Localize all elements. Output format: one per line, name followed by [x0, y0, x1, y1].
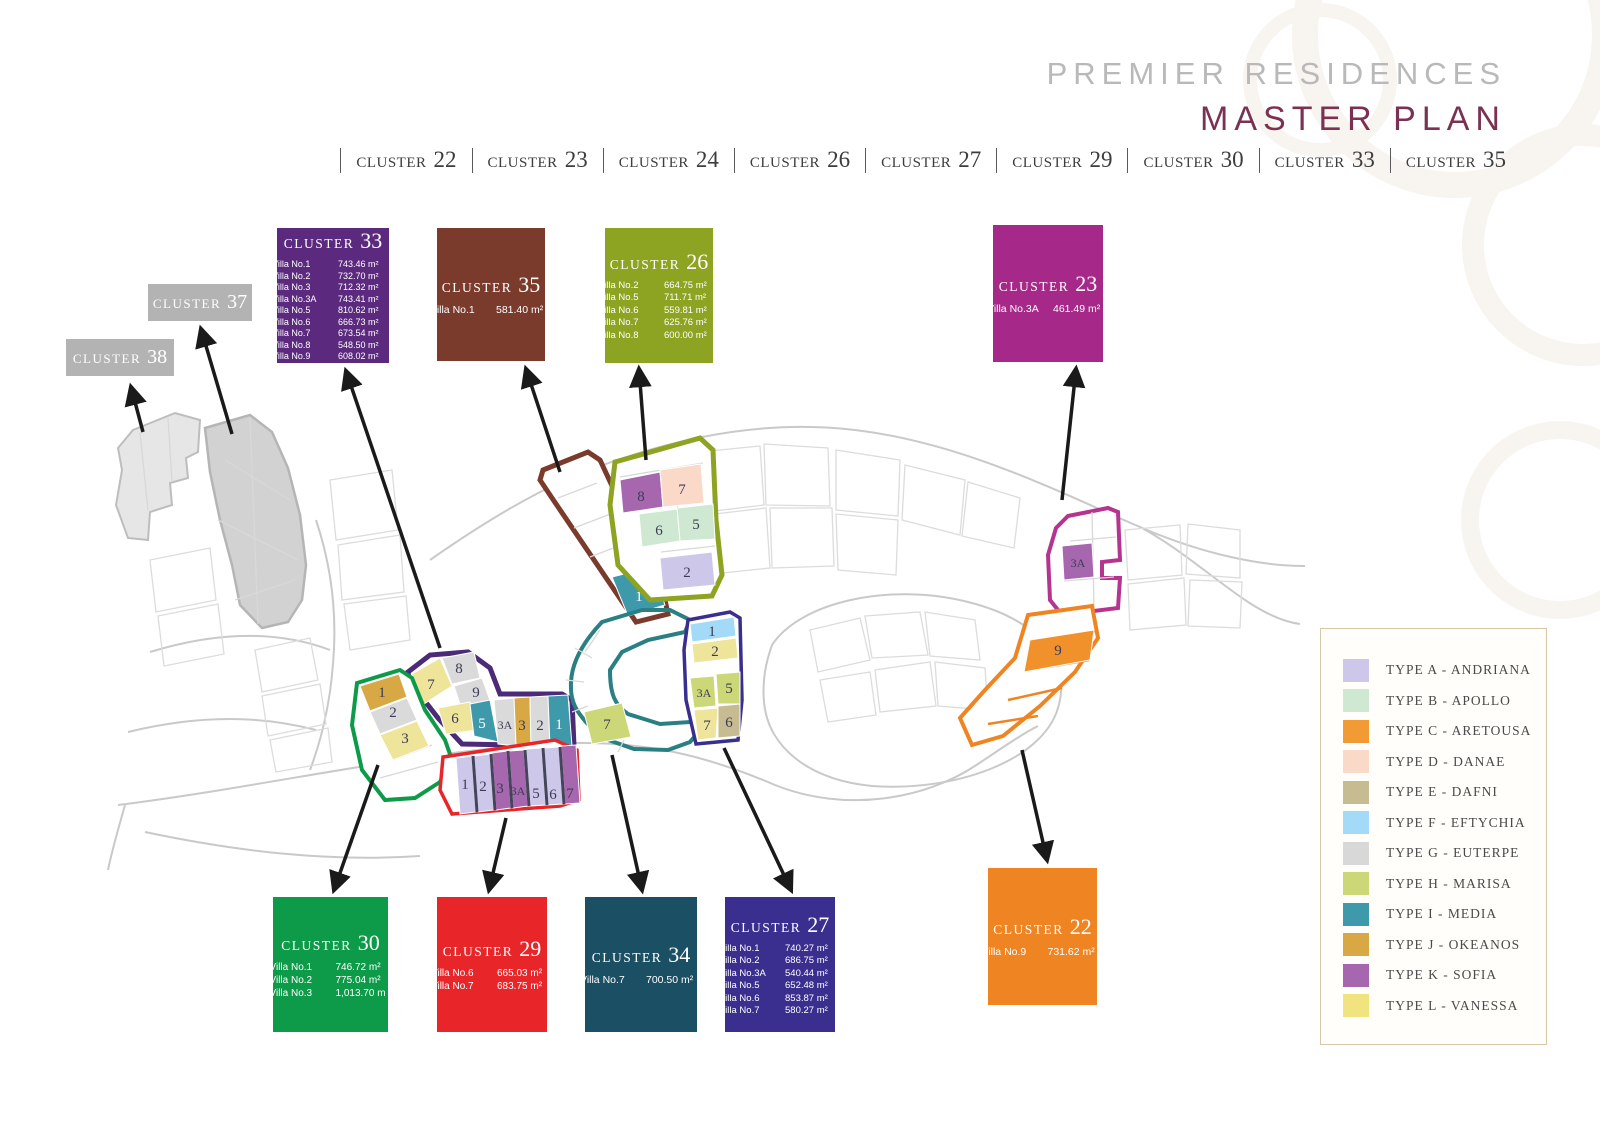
cluster-word: CLUSTER	[281, 938, 352, 953]
nav-cluster-word: CLUSTER	[356, 155, 426, 172]
legend-item: TYPE E - DAFNI	[1343, 777, 1546, 808]
cluster-number: 38	[147, 346, 167, 368]
cell-label: 9	[1054, 643, 1062, 659]
villa-row: Villa No.7 673.54 m²	[272, 328, 394, 340]
arrow-cluster-30	[334, 765, 378, 890]
villa-row: Villa No.3 1,013.70 m	[270, 987, 392, 1000]
arrow-cluster-33	[346, 371, 440, 648]
cluster-34-title: CLUSTER34	[592, 942, 691, 968]
cluster-30-title: CLUSTER30	[281, 930, 380, 956]
villa-name: Villa No.1	[270, 961, 327, 974]
cluster-35-info-box: CLUSTER35 Villa No.1 581.40 m²	[437, 228, 545, 361]
villa-row: Villa No.3A 743.41 m²	[272, 294, 394, 306]
type-color-swatch	[1343, 933, 1369, 956]
cluster-35-title: CLUSTER35	[442, 272, 541, 298]
cell-label: 3	[496, 781, 504, 797]
villa-area: 1,013.70 m	[336, 987, 392, 1000]
type-color-swatch	[1343, 964, 1369, 987]
nav-cluster-word: CLUSTER	[488, 155, 558, 172]
villa-area: 743.46 m²	[338, 259, 394, 271]
cluster-number: 35	[518, 272, 540, 297]
legend-item: TYPE H - MARISA	[1343, 869, 1546, 900]
cluster-word: CLUSTER	[153, 296, 221, 311]
villa-area: 712.32 m²	[338, 282, 394, 294]
cell-label: 3A	[498, 718, 513, 732]
nav-cluster-word: CLUSTER	[1012, 155, 1082, 172]
type-label: TYPE G - EUTERPE	[1386, 845, 1519, 861]
cluster-word: CLUSTER	[443, 944, 514, 959]
cluster-26-info-box: CLUSTER26 Villa No.2 664.75 m² Villa No.…	[605, 228, 713, 363]
villa-list: Villa No.3A 461.49 m²	[987, 302, 1109, 316]
villa-name: Villa No.6	[431, 967, 488, 981]
type-label: TYPE C - ARETOUSA	[1386, 723, 1531, 739]
villa-name: Villa No.2	[270, 974, 327, 987]
cluster-23-title: CLUSTER23	[999, 271, 1098, 297]
legend-item: TYPE C - ARETOUSA	[1343, 716, 1546, 747]
villa-area: 810.62 m²	[338, 305, 394, 317]
cell-label: 1	[461, 777, 469, 793]
villa-area: 673.54 m²	[338, 328, 394, 340]
villa-row: Villa No.2 664.75 m²	[598, 280, 720, 293]
legend-item: TYPE J - OKEANOS	[1343, 930, 1546, 961]
villa-name: Villa No.2	[272, 271, 329, 283]
arrow-cluster-38	[131, 387, 143, 432]
cluster-number: 27	[807, 912, 829, 937]
villa-name: Villa No.5	[719, 980, 776, 993]
villa-area: 608.02 m²	[338, 351, 394, 363]
villa-name: Villa No.1	[719, 943, 776, 956]
villa-area: 740.27 m²	[785, 943, 841, 956]
villa-row: Villa No.6 665.03 m²	[431, 967, 553, 981]
cluster-number: 26	[686, 249, 708, 274]
legend-item: TYPE I - MEDIA	[1343, 899, 1546, 930]
villa-row: Villa No.6 853.87 m²	[719, 993, 841, 1006]
villa-name: Villa No.9	[982, 945, 1039, 959]
cell-label: 7	[566, 786, 574, 802]
cell-label: 2	[536, 718, 544, 734]
villa-name: Villa No.5	[598, 292, 655, 305]
cluster-29-info-box: CLUSTER29 Villa No.6 665.03 m² Villa No.…	[437, 897, 547, 1032]
villa-row: Villa No.6 666.73 m²	[272, 317, 394, 329]
map-cluster-26: 8 7 6 5 2	[610, 438, 722, 600]
cluster-number: 33	[360, 228, 382, 253]
villa-area: 731.62 m²	[1048, 945, 1104, 959]
arrow-cluster-27	[724, 748, 791, 890]
type-color-swatch	[1343, 689, 1369, 712]
cluster-word: CLUSTER	[993, 922, 1064, 937]
nav-cluster-item[interactable]: CLUSTER 23	[457, 147, 588, 173]
cluster-37-info-box: CLUSTER37	[148, 284, 252, 321]
legend-item: TYPE B - APOLLO	[1343, 686, 1546, 717]
villa-name: Villa No.2	[719, 955, 776, 968]
cluster-number: 30	[358, 930, 380, 955]
villa-area: 581.40 m²	[496, 303, 552, 317]
cell-label: 3A	[697, 686, 712, 700]
type-color-swatch	[1343, 781, 1369, 804]
villa-row: Villa No.1 746.72 m²	[270, 961, 392, 974]
arrow-cluster-35	[526, 369, 560, 472]
villa-name: Villa No.8	[598, 330, 655, 343]
cell-label: 7	[703, 718, 711, 734]
villa-name: Villa No.6	[598, 305, 655, 318]
brand-title: PREMIER RESIDENCES	[1047, 56, 1506, 92]
nav-cluster-number: 27	[958, 147, 981, 173]
cluster-33-info-box: CLUSTER33 Villa No.1 743.46 m² Villa No.…	[277, 228, 389, 363]
type-color-swatch	[1343, 872, 1369, 895]
villa-row: Villa No.7 683.75 m²	[431, 980, 553, 994]
type-color-swatch	[1343, 659, 1369, 682]
nav-cluster-number: 29	[1089, 147, 1112, 173]
villa-row: Villa No.1 581.40 m²	[430, 303, 552, 317]
villa-area: 600.00 m²	[664, 330, 720, 343]
villa-name: Villa No.3	[270, 987, 327, 1000]
legend-item: TYPE L - VANESSA	[1343, 991, 1546, 1022]
villa-name: Villa No.3A	[719, 968, 776, 981]
cluster-number: 37	[227, 291, 247, 313]
legend-item: TYPE K - SOFIA	[1343, 960, 1546, 991]
type-label: TYPE H - MARISA	[1386, 876, 1512, 892]
villa-row: Villa No.6 559.81 m²	[598, 305, 720, 318]
type-color-swatch	[1343, 903, 1369, 926]
villa-row: Villa No.1 743.46 m²	[272, 259, 394, 271]
cell-label: 5	[478, 716, 486, 732]
cell-label: 1	[708, 624, 716, 640]
villa-row: Villa No.9 608.02 m²	[272, 351, 394, 363]
villa-list: Villa No.9 731.62 m²	[982, 945, 1104, 959]
villa-name: Villa No.7	[580, 973, 637, 987]
villa-row: Villa No.7 580.27 m²	[719, 1005, 841, 1018]
nav-cluster-number: 24	[696, 147, 719, 173]
cluster-38-title: CLUSTER38	[73, 346, 167, 369]
villa-name: Villa No.3A	[987, 302, 1044, 316]
villa-area: 540.44 m²	[785, 968, 841, 981]
cluster-nav: CLUSTER 22 CLUSTER 23 CLUSTER 24 CLUSTER…	[325, 147, 1506, 173]
nav-cluster-item[interactable]: CLUSTER 33	[1244, 147, 1375, 173]
arrow-cluster-26	[639, 369, 646, 460]
cluster-word: CLUSTER	[731, 920, 802, 935]
cell-label: 3	[518, 718, 526, 734]
cell-label: 3A	[511, 784, 526, 798]
cell-label: 2	[683, 565, 691, 581]
map-cluster-27: 1 2 3A 5 7 6	[684, 612, 742, 744]
villa-area: 625.76 m²	[664, 317, 720, 330]
legend-item: TYPE F - EFTYCHIA	[1343, 808, 1546, 839]
cell-label: 6	[725, 715, 733, 731]
villa-name: Villa No.2	[598, 280, 655, 293]
cell-label: 2	[711, 644, 719, 660]
type-color-swatch	[1343, 811, 1369, 834]
legend-item: TYPE A - ANDRIANA	[1343, 655, 1546, 686]
villa-row: Villa No.5 711.71 m²	[598, 292, 720, 305]
villa-row: Villa No.1 740.27 m²	[719, 943, 841, 956]
nav-cluster-word: CLUSTER	[619, 155, 689, 172]
villa-name: Villa No.5	[272, 305, 329, 317]
cell-label: 7	[603, 717, 611, 733]
type-label: TYPE E - DAFNI	[1386, 784, 1498, 800]
arrow-cluster-37	[201, 329, 232, 434]
nav-cluster-word: CLUSTER	[1143, 155, 1213, 172]
cluster-word: CLUSTER	[999, 279, 1070, 294]
cluster-word: CLUSTER	[592, 950, 663, 965]
type-label: TYPE I - MEDIA	[1386, 906, 1497, 922]
arrow-cluster-22	[1022, 750, 1047, 860]
villa-row: Villa No.7 625.76 m²	[598, 317, 720, 330]
type-color-swatch	[1343, 842, 1369, 865]
cell-label: 7	[678, 482, 686, 498]
cell-label: 2	[389, 705, 397, 721]
type-label: TYPE J - OKEANOS	[1386, 937, 1520, 953]
cluster-word: CLUSTER	[73, 351, 141, 366]
cluster-word: CLUSTER	[442, 280, 513, 295]
type-label: TYPE D - DANAE	[1386, 754, 1505, 770]
legend-item: TYPE G - EUTERPE	[1343, 838, 1546, 869]
villa-row: Villa No.2 775.04 m²	[270, 974, 392, 987]
villa-name: Villa No.7	[431, 980, 488, 994]
villa-row: Villa No.2 732.70 m²	[272, 271, 394, 283]
villa-row: Villa No.7 700.50 m²	[580, 973, 702, 987]
villa-name: Villa No.1	[430, 303, 487, 317]
nav-cluster-item[interactable]: CLUSTER 30	[1112, 147, 1243, 173]
villa-area: 683.75 m²	[497, 980, 553, 994]
nav-cluster-word: CLUSTER	[881, 155, 951, 172]
page-title: MASTER PLAN	[1047, 100, 1506, 139]
cluster-number: 23	[1075, 271, 1097, 296]
cluster-37-title: CLUSTER37	[153, 291, 247, 314]
cluster-22-title: CLUSTER22	[993, 914, 1092, 940]
villa-area: 746.72 m²	[336, 961, 392, 974]
cluster-22-info-box: CLUSTER22 Villa No.9 731.62 m²	[988, 868, 1097, 1005]
villa-area: 664.75 m²	[664, 280, 720, 293]
cluster-38-info-box: CLUSTER38	[66, 339, 174, 376]
cluster-word: CLUSTER	[610, 257, 681, 272]
villa-list: Villa No.1 581.40 m²	[430, 303, 552, 317]
nav-cluster-item[interactable]: CLUSTER 27	[850, 147, 981, 173]
cell-label: 6	[655, 523, 663, 539]
nav-cluster-number: 22	[434, 147, 457, 173]
cell-label: 1	[555, 717, 563, 733]
villa-name: Villa No.6	[719, 993, 776, 1006]
arrow-cluster-34	[612, 755, 642, 890]
villa-area: 700.50 m²	[646, 973, 702, 987]
type-label: TYPE B - APOLLO	[1386, 693, 1511, 709]
type-label: TYPE A - ANDRIANA	[1386, 662, 1531, 678]
cluster-33-title: CLUSTER33	[284, 228, 383, 254]
cluster-29-title: CLUSTER29	[443, 936, 542, 962]
villa-name: Villa No.8	[272, 340, 329, 352]
nav-cluster-word: CLUSTER	[1406, 155, 1476, 172]
gray-area-cluster-37	[205, 415, 306, 628]
villa-area: 686.75 m²	[785, 955, 841, 968]
map-cluster-22: 9	[960, 606, 1098, 745]
cluster-word: CLUSTER	[284, 236, 355, 251]
cluster-34-info-box: CLUSTER34 Villa No.7 700.50 m²	[585, 897, 697, 1032]
cell-label: 5	[532, 786, 540, 802]
villa-area: 580.27 m²	[785, 1005, 841, 1018]
villa-area: 743.41 m²	[338, 294, 394, 306]
villa-area: 666.73 m²	[338, 317, 394, 329]
cluster-27-info-box: CLUSTER27 Villa No.1 740.27 m² Villa No.…	[725, 897, 835, 1032]
villa-area: 665.03 m²	[497, 967, 553, 981]
nav-cluster-item[interactable]: CLUSTER 35	[1375, 147, 1506, 173]
cluster-26-title: CLUSTER26	[610, 249, 709, 275]
type-color-swatch	[1343, 720, 1369, 743]
villa-type-legend: TYPE A - ANDRIANA TYPE B - APOLLO TYPE C…	[1320, 628, 1547, 1045]
villa-row: Villa No.8 600.00 m²	[598, 330, 720, 343]
cell-label: 6	[549, 787, 557, 803]
type-label: TYPE F - EFTYCHIA	[1386, 815, 1526, 831]
cluster-27-title: CLUSTER27	[731, 912, 830, 938]
villa-row: Villa No.9 731.62 m²	[982, 945, 1104, 959]
nav-cluster-item[interactable]: CLUSTER 22	[325, 147, 456, 173]
nav-cluster-number: 30	[1221, 147, 1244, 173]
cell-label: 3A	[1071, 556, 1086, 570]
villa-list: Villa No.1 746.72 m² Villa No.2 775.04 m…	[270, 961, 392, 1000]
master-plan-page: 1 8 7 6 5 2 3A 9	[0, 0, 1600, 1131]
map-cluster-23: 3A	[1048, 508, 1120, 615]
type-color-swatch	[1343, 750, 1369, 773]
nav-cluster-number: 35	[1483, 147, 1506, 173]
villa-name: Villa No.3	[272, 282, 329, 294]
cell-label: 5	[692, 517, 700, 533]
cell-label: 7	[427, 677, 435, 693]
villa-area: 732.70 m²	[338, 271, 394, 283]
villa-list: Villa No.2 664.75 m² Villa No.5 711.71 m…	[598, 280, 720, 343]
cell-label: 3	[401, 731, 409, 747]
villa-list: Villa No.1 743.46 m² Villa No.2 732.70 m…	[272, 259, 394, 363]
nav-cluster-word: CLUSTER	[750, 155, 820, 172]
nav-cluster-word: CLUSTER	[1275, 155, 1345, 172]
villa-list: Villa No.1 740.27 m² Villa No.2 686.75 m…	[719, 943, 841, 1018]
type-label: TYPE L - VANESSA	[1386, 998, 1518, 1014]
nav-cluster-item[interactable]: CLUSTER 29	[981, 147, 1112, 173]
cell-label: 6	[451, 711, 459, 727]
cluster-number: 22	[1070, 914, 1092, 939]
villa-list: Villa No.7 700.50 m²	[580, 973, 702, 987]
page-header: PREMIER RESIDENCES MASTER PLAN	[1047, 56, 1506, 139]
cell-label: 8	[637, 489, 645, 505]
type-label: TYPE K - SOFIA	[1386, 967, 1497, 983]
cell-label: 5	[725, 681, 733, 697]
nav-cluster-item[interactable]: CLUSTER 24	[588, 147, 719, 173]
cell-label: 9	[472, 685, 480, 701]
villa-area: 775.04 m²	[336, 974, 392, 987]
villa-name: Villa No.9	[272, 351, 329, 363]
villa-area: 652.48 m²	[785, 980, 841, 993]
villa-area: 559.81 m²	[664, 305, 720, 318]
villa-name: Villa No.1	[272, 259, 329, 271]
villa-row: Villa No.2 686.75 m²	[719, 955, 841, 968]
villa-list: Villa No.6 665.03 m² Villa No.7 683.75 m…	[431, 967, 553, 994]
villa-name: Villa No.7	[719, 1005, 776, 1018]
villa-area: 461.49 m²	[1053, 302, 1109, 316]
arrow-cluster-23	[1062, 369, 1076, 500]
villa-area: 853.87 m²	[785, 993, 841, 1006]
villa-area: 548.50 m²	[338, 340, 394, 352]
nav-cluster-number: 26	[827, 147, 850, 173]
villa-name: Villa No.7	[598, 317, 655, 330]
cell-label: 8	[455, 661, 463, 677]
villa-row: Villa No.3A 540.44 m²	[719, 968, 841, 981]
cluster-23-info-box: CLUSTER23 Villa No.3A 461.49 m²	[993, 225, 1103, 362]
villa-area: 711.71 m²	[664, 292, 720, 305]
cell-label: 1	[378, 685, 386, 701]
villa-name: Villa No.3A	[272, 294, 329, 306]
map-cluster-34: 7	[566, 610, 700, 752]
legend-item: TYPE D - DANAE	[1343, 747, 1546, 778]
cluster-number: 34	[668, 942, 690, 967]
gray-area-cluster-38	[116, 413, 200, 540]
type-color-swatch	[1343, 994, 1369, 1017]
arrow-cluster-29	[489, 818, 506, 890]
villa-row: Villa No.5 652.48 m²	[719, 980, 841, 993]
nav-cluster-number: 33	[1352, 147, 1375, 173]
cell-label: 2	[479, 779, 487, 795]
villa-row: Villa No.5 810.62 m²	[272, 305, 394, 317]
cluster-30-info-box: CLUSTER30 Villa No.1 746.72 m² Villa No.…	[273, 897, 388, 1032]
nav-cluster-number: 23	[565, 147, 588, 173]
villa-row: Villa No.3A 461.49 m²	[987, 302, 1109, 316]
villa-row: Villa No.3 712.32 m²	[272, 282, 394, 294]
villa-name: Villa No.6	[272, 317, 329, 329]
nav-cluster-item[interactable]: CLUSTER 26	[719, 147, 850, 173]
villa-row: Villa No.8 548.50 m²	[272, 340, 394, 352]
cluster-number: 29	[519, 936, 541, 961]
villa-name: Villa No.7	[272, 328, 329, 340]
